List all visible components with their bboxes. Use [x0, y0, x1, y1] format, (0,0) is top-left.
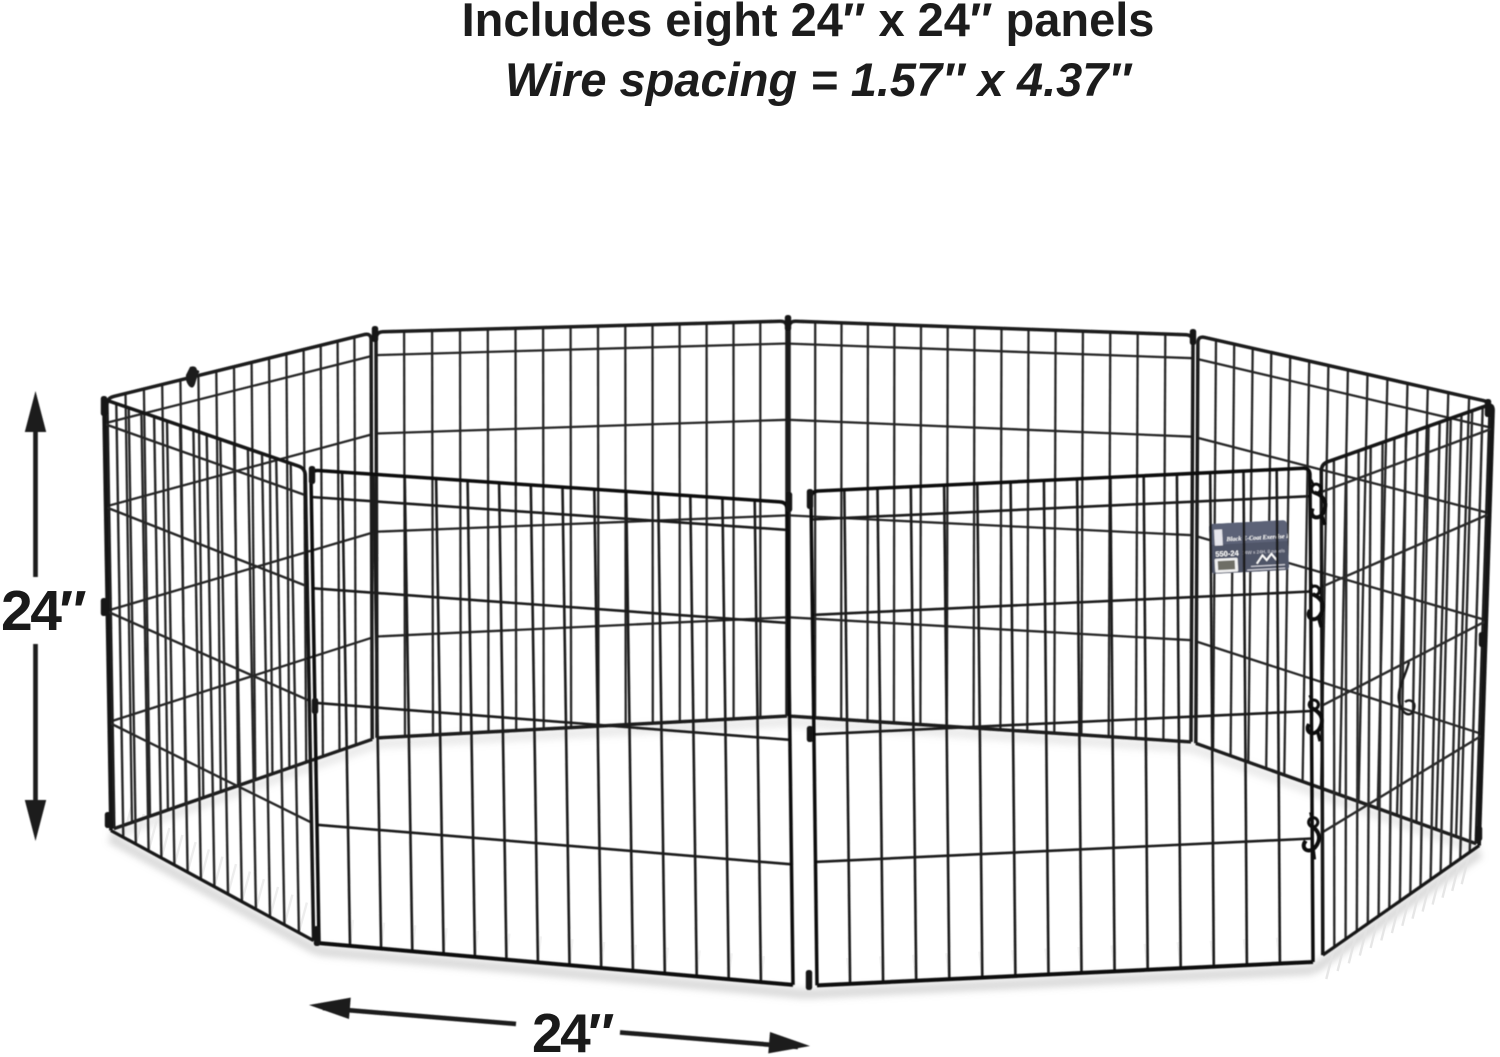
svg-text:550-24: 550-24: [1215, 549, 1240, 559]
